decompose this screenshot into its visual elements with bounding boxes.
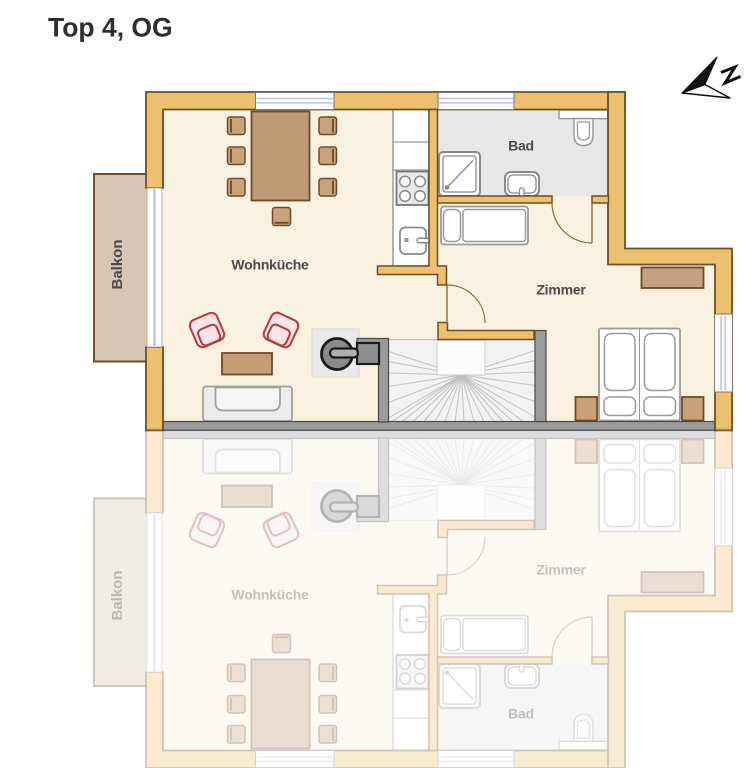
- svg-text:Bad: Bad: [508, 138, 534, 154]
- svg-text:Top 4, OG: Top 4, OG: [48, 13, 173, 43]
- svg-text:Zimmer: Zimmer: [536, 282, 586, 298]
- svg-text:Balkon: Balkon: [109, 239, 126, 289]
- svg-text:Wohnküche: Wohnküche: [231, 587, 309, 603]
- svg-text:Balkon: Balkon: [109, 570, 126, 620]
- svg-text:Wohnküche: Wohnküche: [231, 257, 309, 273]
- svg-text:Bad: Bad: [508, 706, 534, 722]
- svg-text:Zimmer: Zimmer: [536, 562, 586, 578]
